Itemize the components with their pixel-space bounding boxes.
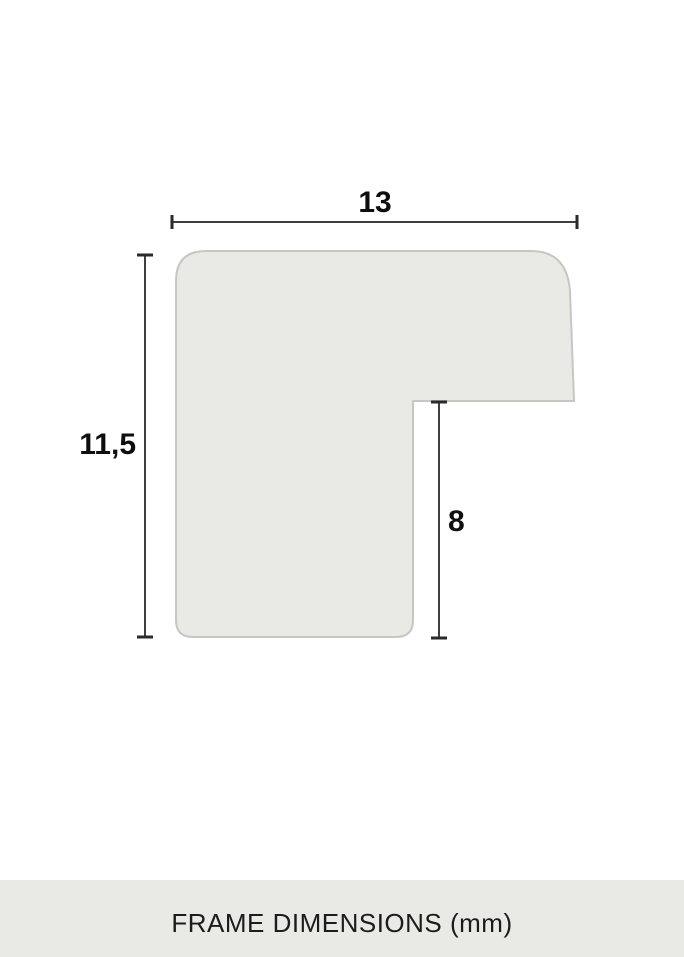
height-dimension-label: 11,5 bbox=[40, 428, 136, 462]
notch-dimension-label: 8 bbox=[448, 505, 465, 539]
notch-dimension-line bbox=[431, 402, 447, 638]
width-dimension-label: 13 bbox=[325, 186, 425, 220]
footer-caption: FRAME DIMENSIONS (mm) bbox=[171, 908, 512, 939]
height-dimension-line bbox=[137, 255, 153, 637]
footer-bar: FRAME DIMENSIONS (mm) bbox=[0, 880, 684, 957]
frame-dimensions-diagram: 13 11,5 8 FRAME DIMENSIONS (mm) bbox=[0, 0, 684, 957]
frame-profile-shape bbox=[176, 251, 574, 637]
